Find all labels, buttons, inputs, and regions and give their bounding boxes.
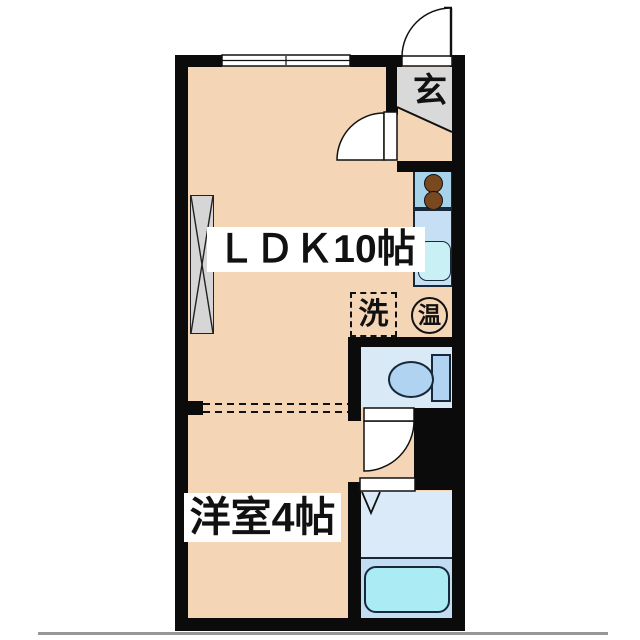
hall-bottom-wall bbox=[397, 161, 453, 172]
floorplan-page: { "floorplan": { "rooms": { "ldk": { "la… bbox=[0, 0, 640, 640]
water-heater-symbol: 温 bbox=[411, 297, 448, 334]
water-heater-label: 温 bbox=[418, 302, 441, 328]
washing-machine-symbol: 洗 bbox=[350, 292, 397, 337]
wall-bottom bbox=[175, 618, 465, 631]
pipe-space-block bbox=[414, 408, 453, 490]
toilet-tank-icon bbox=[431, 354, 451, 402]
toilet-bowl-icon bbox=[388, 361, 434, 398]
bathtub-icon bbox=[364, 566, 450, 613]
entrance-door-icon bbox=[402, 8, 452, 67]
bathroom-upper-area bbox=[358, 491, 452, 557]
stove-burner-icon bbox=[424, 191, 443, 210]
mid-wall-lower bbox=[348, 482, 361, 618]
wall-right bbox=[452, 55, 465, 631]
mid-wall-upper bbox=[348, 337, 361, 421]
washing-machine-label: 洗 bbox=[359, 298, 389, 331]
western-room-label-text: 洋室4帖 bbox=[190, 494, 336, 540]
wall-left bbox=[175, 55, 188, 631]
room-label-ldk: ＬＤＫ10帖 bbox=[207, 227, 425, 272]
ldk-label-text: ＬＤＫ10帖 bbox=[216, 228, 415, 271]
partition-wall-stub bbox=[183, 401, 203, 415]
toilet-top-wall bbox=[348, 337, 453, 347]
window-icon bbox=[222, 55, 350, 66]
room-label-western: 洋室4帖 bbox=[184, 493, 341, 542]
room-label-entrance: 玄 bbox=[411, 72, 449, 110]
entrance-side-wall bbox=[386, 67, 398, 115]
kitchen-stove-counter bbox=[413, 170, 453, 209]
wall-top-mid bbox=[350, 55, 402, 67]
page-divider-line bbox=[38, 632, 608, 635]
entrance-label-text: 玄 bbox=[413, 72, 447, 110]
